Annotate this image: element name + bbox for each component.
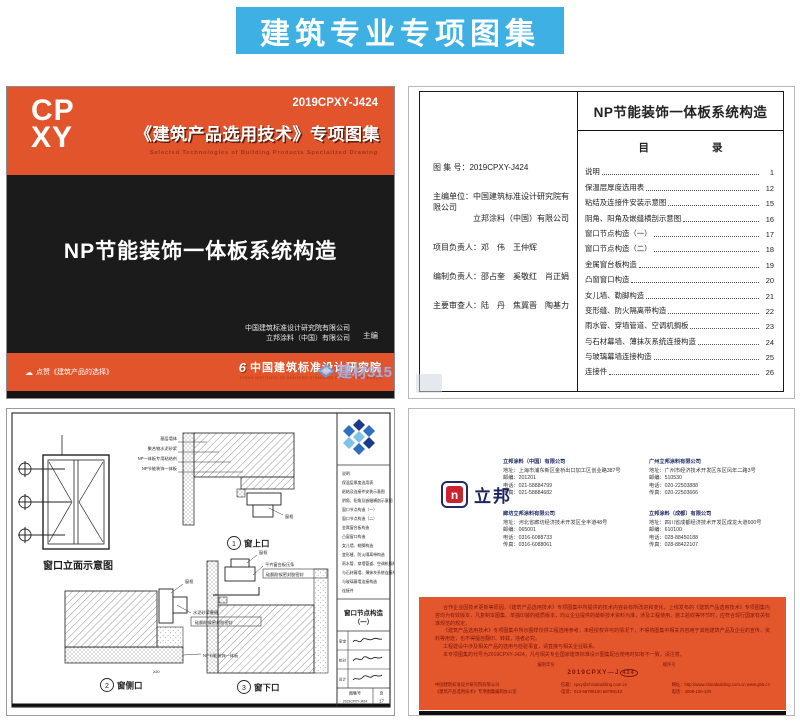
back-page-bottom-rule [419, 711, 786, 715]
toc-item-page: 16 [761, 215, 774, 224]
toc-heading: 目 录 [578, 140, 783, 155]
detail1-number: 1 [232, 541, 236, 548]
sig-label-3: 设计 [339, 677, 347, 682]
detail3-caption: 窗下口 [254, 683, 280, 693]
toc-item-label: 女儿墙、勒脚构造 [585, 290, 644, 301]
contact-block: 广州立邦涂料有限公司 地址：广州市经济技术开发区东区凤年二路3号 邮编：5105… [649, 459, 794, 498]
cpxy-logo-line2: XY [31, 124, 75, 151]
company-name: 广州立邦涂料有限公司 [649, 459, 794, 467]
editor-line2: 立邦涂料（中国）有限公司 [245, 334, 350, 344]
layer-label-mortar: 聚合物水泥砂浆 [148, 445, 178, 452]
svg-text:雨水管、穿墙管道、空调机搁板: 雨水管、穿墙管道、空调机搁板 [342, 561, 394, 566]
notice-paragraph: 本专项图集的代号为2019CPXY-J424，凡与相关专业国家建筑标准设计图集配… [435, 652, 770, 660]
titleblock-index: 说明 保温层厚度选用表 粘结及连接件安装示意图 阴角、阳角及嵌缝横剖示意图 窗口… [342, 471, 394, 593]
page-label: 页 [380, 691, 384, 696]
atlas-code: 2019CPXY-J424 [292, 97, 378, 109]
toc-item: 与石材幕墙、薄抹灰系统连接构造24 [585, 331, 774, 346]
toc-item: 阴角、阳角及嵌缝横剖示意图16 [585, 208, 774, 223]
notice-paragraph: 《建筑产品选用技术》专项图集中所示图样仅供工程选用参考，未经授权许可的情况下，不… [435, 628, 770, 644]
editor-role: 主编 [363, 330, 378, 341]
nippon-logo-icon: n [441, 481, 468, 508]
watermark-stamp [416, 374, 442, 393]
svg-text:说明: 说明 [342, 471, 350, 476]
contact-block: 立邦涂料（中国）有限公司 地址：上海市浦东新区金桥出口加工区创业路387号 邮编… [503, 459, 645, 498]
cover-main-title: NP节能装饰一体板系统构造 [7, 175, 394, 265]
back-page-panel: n 立邦 立邦涂料（中国）有限公司 地址：上海市浦东新区金桥出口加工区创业路38… [408, 408, 795, 716]
editor-line1: 中国建筑标准设计研究院有限公司 [245, 324, 350, 334]
toc-item-label: 窗口节点构造（二） [585, 243, 652, 254]
footer-col-web: 网址：http://www.chinabuilding.com.cn www.g… [672, 682, 770, 695]
toc-item-page: 19 [761, 261, 774, 270]
titleblock-title: 窗口节点构造 [344, 608, 384, 617]
sheet-code: 2019CPXY-J424 [343, 700, 367, 704]
footer-col-publisher: 中国建筑标准设计研究院有限公司 《建筑产品选用技术》专项图集编制办公室 [435, 682, 517, 695]
svg-text:窗口节点构造（二）: 窗口节点构造（二） [342, 516, 377, 521]
detail2-caption: 窗侧口 [117, 681, 143, 691]
dot-leader [646, 298, 759, 299]
field-label: 主编单位： [433, 192, 473, 201]
svg-text:阴角、阳角及嵌缝横剖示意图: 阴角、阳角及嵌缝横剖示意图 [342, 498, 393, 503]
svg-text:保温层厚度选用表: 保温层厚度选用表 [342, 480, 373, 485]
dot-leader [698, 344, 759, 345]
banner-title: 建筑专业专项图集 [260, 9, 540, 53]
toc-item: 凸窗窗口构造20 [585, 270, 774, 285]
sheet-page: 17 [379, 699, 385, 704]
company-zip: 邮编：065001 [503, 527, 645, 535]
detail2-number: 2 [105, 683, 109, 690]
detail3-number: 3 [242, 685, 246, 692]
toc-item-label: 金属窗台板构造 [585, 259, 637, 270]
nippon-logo: n 立邦 [441, 481, 512, 508]
toc-list: 说明1 保温层厚度选用表12 粘结及连接件安装示意图15 阴角、阳角及嵌缝横剖示… [578, 162, 783, 377]
contact-column-2: 广州立邦涂料有限公司 地址：广州市经济技术开发区东区凤年二路3号 邮编：5105… [649, 459, 794, 563]
code-seq-label: 顺序号 [663, 662, 676, 668]
imprint-field: 编制负责人：邵占奎 奚敬红 肖正娟 [433, 271, 569, 282]
toc-item-label: 说明 [585, 166, 600, 177]
dot-leader [654, 251, 759, 252]
sill-callout: 平齐窗台板压条 [265, 561, 295, 568]
imprint-field: 图 集 号：2019CPXY-J424 [433, 162, 569, 173]
signature-2 [353, 657, 382, 661]
imprint-field: 主编单位：中国建筑标准设计研究院有限公司 立邦涂料（中国）有限公司 [433, 191, 569, 224]
company-fax: 传真：028-88422107 [649, 542, 794, 550]
field-label: 主要审查人： [433, 301, 481, 310]
toc-item-label: 凸窗窗口构造 [585, 274, 629, 285]
contact-column-1: 立邦涂料（中国）有限公司 地址：上海市浦东新区金桥出口加工区创业路387号 邮编… [503, 459, 645, 563]
notice-section: 合作企业因技术更新等原因，《建筑产品选用技术》专项图集中所提供的技术内容会有所改… [419, 597, 786, 710]
toc-page-panel: 图 集 号：2019CPXY-J424 主编单位：中国建筑标准设计研究院有限公司… [408, 86, 795, 399]
dot-leader [690, 328, 759, 329]
sealant-callout-sill: 硅酮耐候密封胶密封 [266, 571, 304, 578]
field-label: 项目负责人： [433, 243, 481, 252]
cover-orange-band: CP XY 2019CPXY-J424 《建筑产品选用技术》专项图集 Selec… [7, 87, 394, 175]
company-fax: 传真：020-22503666 [649, 490, 794, 498]
dot-leader [646, 190, 759, 191]
signature-1 [353, 638, 382, 642]
field-value: 邓 伟 王仲辉 [481, 243, 537, 252]
elevation-callout-3 [18, 527, 65, 543]
toc-item: 窗口节点构造（一）17 [585, 224, 774, 239]
dot-leader [654, 359, 759, 360]
series-subtitle-en: Selected Technologies of Building Produc… [150, 150, 378, 156]
toc-item-label: 窗口节点构造（一） [585, 228, 652, 239]
drawing-sheet: 窗口立面示意图 基层墙体 聚合物水泥砂浆 NP一体板专用粘结剂 NP节能装饰一体… [7, 409, 394, 715]
field-value: 2019CPXY-J424 [469, 163, 528, 172]
dot-leader [602, 174, 759, 175]
code-main: 2019CPXY—J [567, 669, 619, 676]
footer-col-contact: 信箱：cpxy@chinabuilding.com.cn 电话：010-6879… [561, 682, 627, 695]
sig-label-1: 审定 [339, 639, 347, 644]
svg-text:与石材幕墙、薄抹灰系统连接构造: 与石材幕墙、薄抹灰系统连接构造 [342, 570, 394, 575]
company-name: 廊坊立邦涂料有限公司 [503, 511, 645, 519]
field-value: 陆 丹 焦冀晋 陶基力 [481, 301, 569, 310]
svg-text:女儿墙、勒脚构造: 女儿墙、勒脚构造 [342, 543, 373, 548]
diamond-icon [317, 364, 335, 379]
detail-window-head [178, 433, 294, 525]
toc-item-page: 15 [761, 199, 774, 208]
dot-leader [668, 205, 759, 206]
toc-item-label: 粘结及连接件安装示意图 [585, 197, 666, 208]
layer-label-adhesive: NP一体板专用粘结剂 [138, 455, 177, 462]
toc-item: 连接件26 [585, 362, 774, 377]
contact-block: 廊坊立邦涂料有限公司 地址：河北省廊坊经济技术开发区全丰道48号 邮编：0650… [503, 511, 645, 550]
watermark: 建材315 [317, 361, 392, 382]
toc-item-label: 阴角、阳角及嵌缝横剖示意图 [585, 213, 681, 224]
elevation-caption: 窗口立面示意图 [43, 559, 113, 572]
toc-item-page: 24 [761, 338, 774, 347]
imprint-field: 主要审查人：陆 丹 焦冀晋 陶基力 [433, 300, 569, 311]
notice-paragraph: 工程建设中涉及相关产品的选用与检验事宜，请直接与相关企业联系。 [435, 644, 770, 652]
code-year-label: 编制年份 [538, 662, 555, 668]
cpxy-logo-line1: CP [31, 97, 75, 124]
toc-item-page: 26 [761, 368, 774, 377]
page-banner: 建筑专业专项图集 [236, 7, 564, 54]
toc-item: 说明1 [585, 162, 774, 177]
code-diagram: 编制年份 顺序号 2019CPXY—J424 [508, 662, 698, 677]
svg-text:金属窗台板构造: 金属窗台板构造 [342, 525, 369, 530]
company-zip: 邮编：510530 [649, 475, 794, 483]
dim-label: ≥20 [153, 669, 160, 674]
layer-label-board: NP节能装饰一体板 [142, 465, 178, 472]
toc-item: 保温层厚度选用表12 [585, 177, 774, 192]
company-name: 立邦涂料（中国）有限公司 [503, 459, 645, 467]
notice-paragraph: 合作企业因技术更新等原因，《建筑产品选用技术》专项图集中所提供的技术内容会有所改… [435, 605, 770, 628]
frame-callout-3: 窗框 [259, 549, 268, 556]
dot-leader [609, 374, 759, 375]
company-fax: 传真：0316-6088061 [503, 542, 645, 550]
cover-bottom-strip [7, 391, 394, 399]
toc-imprint-column: 图 集 号：2019CPXY-J424 主编单位：中国建筑标准设计研究院有限公司… [420, 92, 578, 391]
toc-item: 女儿墙、勒脚构造21 [585, 285, 774, 300]
toc-item-page: 23 [761, 322, 774, 331]
series-title: 《建筑产品选用技术》专项图集 [135, 120, 380, 145]
field-value2: 立邦涂料（中国）有限公司 [433, 213, 569, 224]
dot-leader [668, 313, 759, 314]
toc-item-page: 22 [761, 307, 774, 316]
company-zip: 邮编：201201 [503, 475, 645, 483]
detail1-caption: 窗上口 [244, 539, 270, 549]
cover-editors: 中国建筑标准设计研究院有限公司 立邦涂料（中国）有限公司 [245, 324, 350, 343]
sig-label-2: 校对 [339, 658, 347, 663]
field-label: 编制负责人： [433, 272, 481, 281]
dot-leader [631, 282, 759, 283]
toc-item-label: 连接件 [585, 366, 607, 377]
field-value: 邵占奎 奚敬红 肖正娟 [481, 272, 569, 281]
contact-block: 立邦涂料（成都）有限公司 地址：四川省成都经济技术开发区成龙大道600号 邮编：… [649, 511, 794, 550]
svg-text:窗口节点构造（一）: 窗口节点构造（一） [342, 507, 377, 512]
elevation-callout-2 [18, 494, 71, 510]
signature-3 [353, 675, 382, 680]
imprint-field: 项目负责人：邓 伟 王仲辉 [433, 242, 569, 253]
toc-item-page: 25 [761, 353, 774, 362]
toc-item-page: 1 [761, 168, 774, 177]
toc-item-page: 17 [761, 230, 774, 239]
toc-item-page: 20 [761, 276, 774, 285]
cover-black-band: NP节能装饰一体板系统构造 中国建筑标准设计研究院有限公司 立邦涂料（中国）有限… [7, 175, 394, 353]
drawing-panel: 窗口立面示意图 基层墙体 聚合物水泥砂浆 NP一体板专用粘结剂 NP节能装饰一体… [6, 408, 395, 716]
toc-page-title: NP节能装饰一体板系统构造 [578, 92, 783, 131]
code-label: 图集号 [349, 690, 361, 696]
company-fax: 传真：021-58884682 [503, 490, 645, 498]
watermark-text: 建材315 [337, 361, 392, 382]
svg-text:变形缝、防火隔离带构造: 变形缝、防火隔离带构造 [342, 552, 385, 557]
toc-item: 雨水管、穿墙管道、空调机搁板23 [585, 316, 774, 331]
institute-diamond-logo [343, 419, 375, 455]
toc-item-label: 保温层厚度选用表 [585, 182, 644, 193]
frame-callout-1: 窗框 [285, 513, 294, 520]
cpxy-logo: CP XY [31, 97, 75, 151]
toc-item-page: 18 [761, 245, 774, 254]
dot-leader [639, 267, 759, 268]
cover-footer-left: ☁ 点赞《建筑产品的选择》 [25, 367, 113, 377]
company-zip: 邮编：610100 [649, 527, 794, 535]
toc-item-label: 与石材幕墙、薄抹灰系统连接构造 [585, 336, 696, 347]
dot-leader [654, 236, 759, 237]
toc-item-page: 12 [761, 184, 774, 193]
code-seq: 424 [620, 669, 638, 677]
svg-text:粘结及连接件安装示意图: 粘结及连接件安装示意图 [342, 489, 385, 494]
toc-item-page: 21 [761, 292, 774, 301]
toc-item-label: 与玻璃幕墙连接构造 [585, 351, 652, 362]
toc-item: 窗口节点构造（二）18 [585, 239, 774, 254]
svg-text:凸窗窗口构造: 凸窗窗口构造 [342, 534, 365, 539]
svg-text:与玻璃幕墙连接构造: 与玻璃幕墙连接构造 [342, 579, 377, 584]
toc-item-label: 雨水管、穿墙管道、空调机搁板 [585, 320, 688, 331]
titleblock-title-2: （一） [354, 618, 374, 626]
notice-footer: 中国建筑标准设计研究院有限公司 《建筑产品选用技术》专项图集编制办公室 信箱：c… [435, 682, 770, 695]
institute-logo-icon: 6 [239, 360, 246, 375]
svg-text:连接件: 连接件 [342, 588, 354, 593]
cover-footer-left-text: 点赞《建筑产品的选择》 [36, 367, 113, 377]
toc-page-frame: 图 集 号：2019CPXY-J424 主编单位：中国建筑标准设计研究院有限公司… [419, 91, 784, 392]
company-name: 立邦涂料（成都）有限公司 [649, 511, 794, 519]
toc-item: 粘结及连接件安装示意图15 [585, 193, 774, 208]
frame-callout-2: 窗框 [185, 578, 194, 585]
field-label: 图 集 号： [433, 163, 469, 172]
toc-item: 变形缝、防火隔离带构造22 [585, 301, 774, 316]
toc-list-column: NP节能装饰一体板系统构造 目 录 说明1 保温层厚度选用表12 粘结及连接件安… [578, 92, 783, 391]
cover-panel: CP XY 2019CPXY-J424 《建筑产品选用技术》专项图集 Selec… [6, 86, 395, 399]
elevation-callout-1 [18, 461, 65, 477]
window-elevation [18, 435, 109, 549]
cloud-icon: ☁ [25, 368, 33, 377]
toc-item-label: 变形缝、防火隔离带构造 [585, 305, 666, 316]
toc-item: 与玻璃幕墙连接构造25 [585, 347, 774, 362]
toc-item: 金属窗台板构造19 [585, 254, 774, 269]
dot-leader [683, 221, 759, 222]
layer-label-substrate: 基层墙体 [160, 435, 178, 442]
titleblock: 说明 保温层厚度选用表 粘结及连接件安装示意图 阴角、阳角及嵌缝横剖示意图 窗口… [337, 419, 394, 705]
